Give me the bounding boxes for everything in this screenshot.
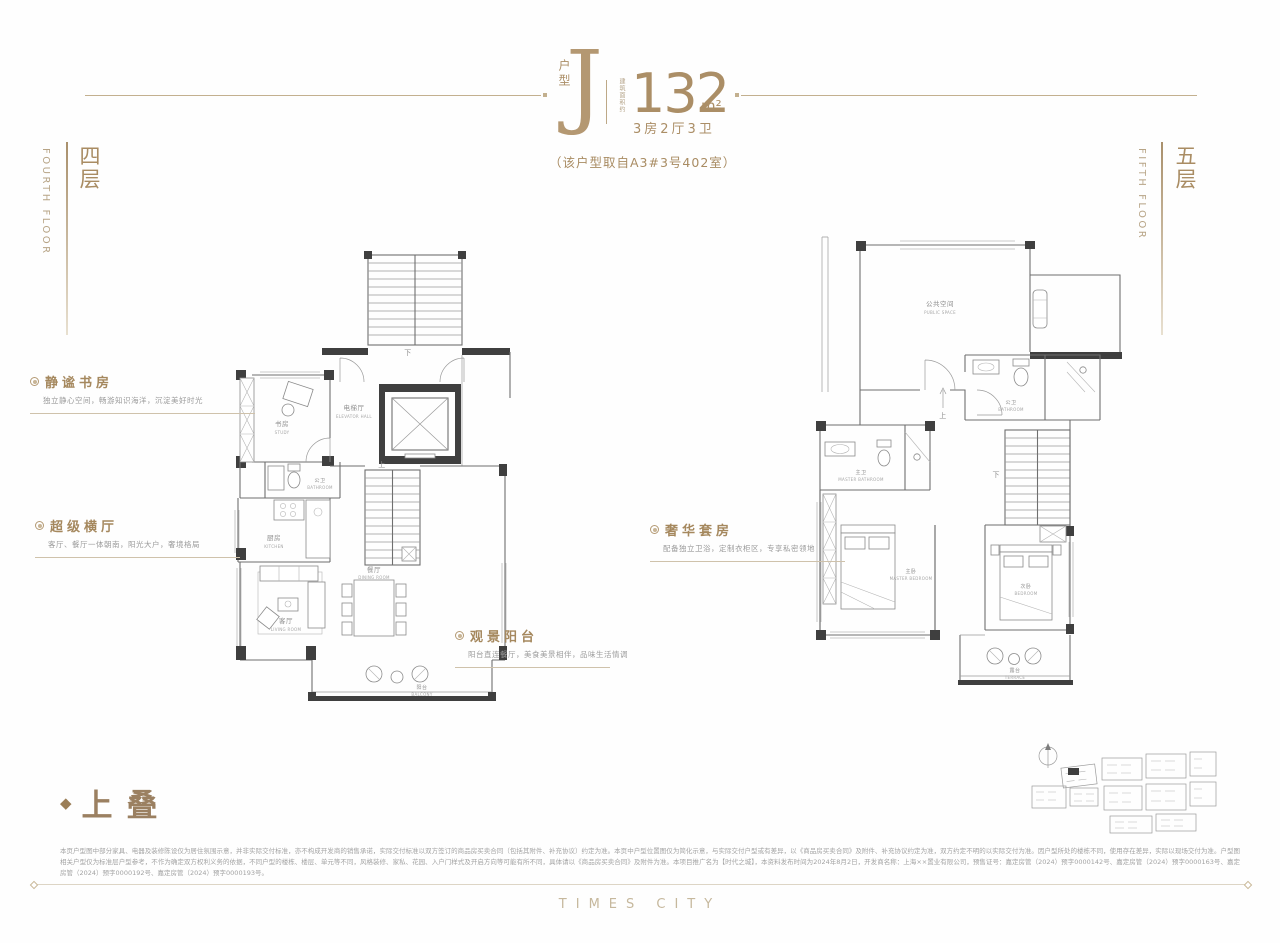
master-bed-label-en: MASTER BEDROOM [890,576,933,581]
study-label-cn: 书房 [275,419,289,428]
terrace-label-cn: 露台 [1009,667,1020,674]
master-bath-label-cn: 主卫 [855,469,866,476]
balcony-label-cn: 阳台 [416,684,427,691]
footer-rule [35,884,1245,885]
master-bath-label-en: MASTER BATHROOM [838,477,884,482]
stair-down-label-5f: 下 [993,471,1001,479]
north-compass-icon [1039,743,1057,768]
floor-right-cn: 五层 [1170,145,1200,245]
rule-diamond-icon [1244,881,1252,889]
elevator-shaft: 电梯厅 ELEVATOR HALL [336,384,461,464]
lower-terrace: 露台 TERRACE [958,635,1073,685]
area-value: 132 [631,62,728,125]
floor-left-en: FOURTH FLOOR [40,148,51,348]
living-label-cn: 客厅 [279,616,293,625]
section-tag-text: 上叠 [82,780,172,825]
master-bed-label-cn: 主卧 [905,568,916,575]
annotation-leader-line [650,561,845,562]
elevator-hall-label-en: ELEVATOR HALL [336,414,372,419]
site-key-plan [1022,728,1222,840]
floor-right-en: FIFTH FLOOR [1136,148,1147,348]
floor-left-line [66,142,68,335]
master-bathroom: 主卫 MASTER BATHROOM [816,421,935,490]
header-deco-square-left [543,93,547,97]
floorplan-fifth-floor: 公共空间 PUBLIC SPACE 上 公卫 BATHROOM [805,232,1125,692]
header-deco-square-right [735,93,739,97]
bathroom-5f: 公卫 BATHROOM [965,355,1100,420]
room-count-line: 3房2厅3卫 [633,118,715,137]
kitchen: 厨房 KITCHEN [235,498,330,562]
area-prefix: 建筑面积约 [617,78,626,113]
guest-bathroom: 公卫 BATHROOM [240,462,340,498]
shared-staircase: 下 [364,251,466,357]
annotation-leader-line [30,413,255,414]
annotation-desc: 独立静心空间，畅游知识海洋，沉淀美好时光 [43,395,255,406]
bath5-label-cn: 公卫 [1005,400,1016,406]
elevator-hall-label-cn: 电梯厅 [344,403,365,412]
step-up-label: 上 [939,411,947,420]
annotation-leader-line [35,557,240,558]
header-deco-line-right [741,95,1197,96]
annotation-desc: 配备独立卫浴，定制衣柜区，专享私密领地 [663,543,845,554]
annotation-study: 静谧书房 独立静心空间，畅游知识海洋，沉淀美好时光 [30,372,255,414]
bath4-label-cn: 公卫 [314,478,325,484]
public-space-label-cn: 公共空间 [926,299,954,308]
rule-diamond-icon [30,881,38,889]
dining-label-en: DINING ROOM [358,575,390,580]
annotation-title: 观景阳台 [470,626,538,645]
bath4-label-en: BATHROOM [307,485,333,490]
master-bedroom: 主卧 MASTER BEDROOM [816,490,940,640]
area-unit: m² [701,97,722,115]
unit-type-letter: J [566,30,603,140]
diamond-icon: ◆ [60,794,72,812]
study-label-en: STUDY [275,430,290,435]
floor-left-cn: 四层 [74,145,104,245]
bedroom-label-cn: 次卧 [1020,583,1031,590]
stair-down-label: 下 [404,349,412,357]
disclaimer-text: 本页户型图中部分家具、电器及装修陈设仅为居住氛围示意，并非实际交付标准，亦不构成… [60,846,1240,879]
roof-edge [822,237,828,392]
public-space-label-en: PUBLIC SPACE [924,310,956,315]
second-bedroom: 次卧 BEDROOM [985,420,1074,634]
annotation-leader-line [455,667,610,668]
annotation-title: 超级横厅 [50,516,118,535]
header-divider [606,80,607,124]
upper-terrace [1030,275,1122,359]
header-deco-line-left [85,95,541,96]
bath5-label-en: BATHROOM [998,407,1024,412]
brochure-page: 户型 J 建筑面积约 132 m² 3房2厅3卫 （该户型取自A3#3号402室… [0,0,1280,943]
stair-up-label: 上 [378,460,386,469]
annotation-desc: 客厅、餐厅一体朝南，阳光大户，奢境格局 [48,539,240,550]
balcony-label-en: BALCONY [411,692,432,697]
floor-right-line [1161,142,1163,335]
keyplan-buildings [1032,752,1216,833]
section-tag: ◆ 上叠 [60,780,172,825]
annotation-marker-icon [455,631,464,640]
annotation-balcony: 观景阳台 阳台直连餐厅，美食美景相伴，品味生活情调 [455,626,628,668]
public-space: 公共空间 PUBLIC SPACE 上 [856,241,1035,425]
source-note: （该户型取自A3#3号402室） [549,152,731,171]
highlighted-unit [1068,768,1079,775]
annotation-title: 奢华套房 [665,520,733,539]
living-label-en: LIVING ROOM [271,627,302,632]
annotation-marker-icon [35,521,44,530]
annotation-marker-icon [30,377,39,386]
kitchen-label-cn: 厨房 [267,533,281,542]
terrace-label-en: TERRACE [1004,675,1026,680]
dining-label-cn: 餐厅 [367,565,381,574]
annotation-marker-icon [650,525,659,534]
annotation-living: 超级横厅 客厅、餐厅一体朝南，阳光大户，奢境格局 [35,516,240,558]
bedroom-label-en: BEDROOM [1015,591,1038,596]
kitchen-label-en: KITCHEN [264,544,283,549]
brand-logo: TIMES CITY [0,897,1280,912]
annotation-title: 静谧书房 [45,372,113,391]
annotation-suite: 奢华套房 配备独立卫浴，定制衣柜区，专享私密领地 [650,520,845,562]
duplex-stair-5f: 下 [993,430,1071,525]
annotation-desc: 阳台直连餐厅，美食美景相伴，品味生活情调 [468,649,628,660]
